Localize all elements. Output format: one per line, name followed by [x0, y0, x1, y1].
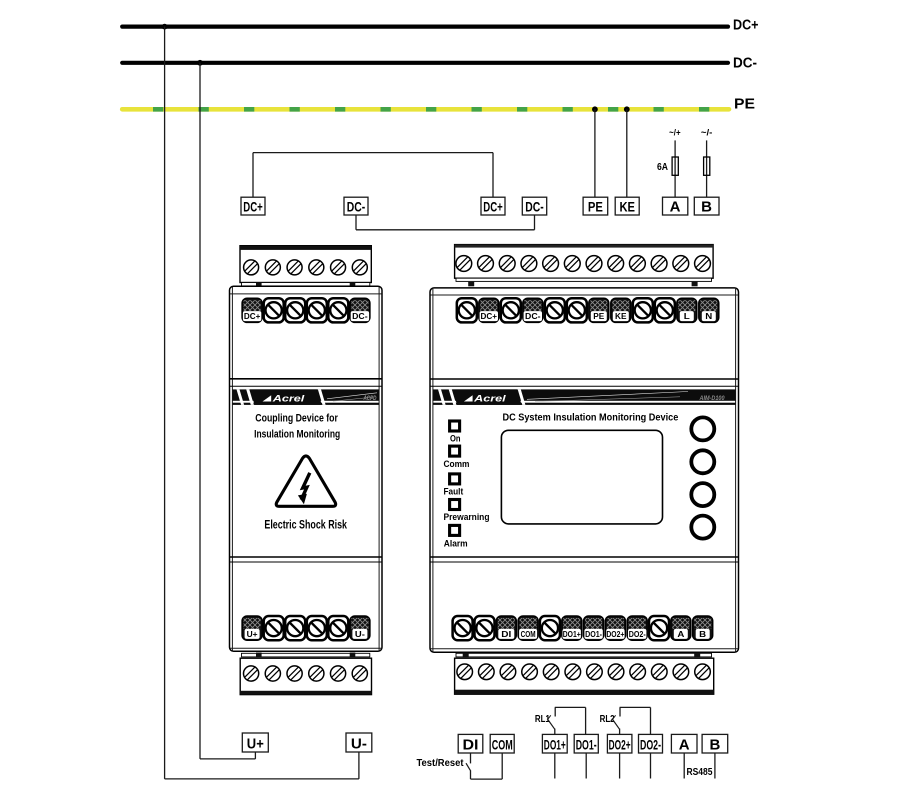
svg-text:PE: PE — [734, 97, 755, 113]
svg-text:DC+: DC+ — [481, 311, 498, 321]
svg-text:L: L — [684, 311, 690, 321]
svg-text:Electric Shock Risk: Electric Shock Risk — [264, 517, 347, 531]
svg-text:DC+: DC+ — [483, 199, 503, 215]
svg-text:KE: KE — [615, 311, 627, 321]
svg-text:A: A — [677, 629, 684, 639]
svg-text:U+: U+ — [247, 735, 264, 752]
svg-text:Acrel: Acrel — [473, 393, 506, 403]
svg-text:DC+: DC+ — [733, 18, 759, 34]
svg-text:N: N — [705, 311, 712, 321]
svg-text:A: A — [670, 198, 681, 215]
svg-text:DC-: DC- — [352, 311, 368, 321]
svg-text:U-: U- — [355, 629, 365, 639]
svg-text:RS485: RS485 — [687, 767, 713, 778]
svg-text:DC+: DC+ — [244, 311, 261, 321]
svg-text:PE: PE — [588, 199, 603, 215]
svg-text:DO1-: DO1- — [585, 629, 602, 639]
svg-text:U+: U+ — [247, 629, 258, 639]
svg-text:DC-: DC- — [525, 311, 541, 321]
svg-text:DO1-: DO1- — [576, 737, 597, 752]
svg-text:DO1+: DO1+ — [544, 737, 566, 752]
svg-text:Test/Reset: Test/Reset — [417, 758, 465, 769]
svg-text:B: B — [699, 629, 706, 639]
svg-text:DC System Insulation Monitorin: DC System Insulation Monitoring Device — [503, 412, 679, 424]
svg-text:Alarm: Alarm — [444, 538, 468, 548]
svg-text:B: B — [701, 198, 712, 215]
svg-text:PE: PE — [593, 311, 604, 321]
svg-text:DC-: DC- — [733, 55, 757, 71]
svg-text:Fault: Fault — [444, 486, 464, 496]
svg-text:Coupling Device for: Coupling Device for — [255, 413, 338, 425]
svg-text:DI: DI — [463, 736, 479, 753]
svg-text:On: On — [450, 434, 461, 444]
svg-text:AIM-D100: AIM-D100 — [699, 396, 726, 402]
svg-text:~/-: ~/- — [701, 128, 713, 139]
svg-text:DC+: DC+ — [243, 199, 263, 215]
svg-text:~/+: ~/+ — [669, 128, 681, 139]
svg-text:KE: KE — [619, 199, 635, 215]
svg-text:DO2+: DO2+ — [606, 629, 624, 639]
svg-text:DO2-: DO2- — [629, 629, 646, 639]
svg-text:B: B — [709, 736, 720, 753]
svg-text:DC-: DC- — [525, 199, 544, 215]
svg-text:Insulation Monitoring: Insulation Monitoring — [254, 429, 340, 441]
svg-text:DO2+: DO2+ — [609, 737, 631, 752]
svg-text:U-: U- — [351, 735, 367, 752]
svg-text:6A: 6A — [657, 161, 668, 173]
svg-text:COM: COM — [521, 629, 536, 639]
svg-text:Comm: Comm — [444, 459, 470, 469]
svg-text:ACPD: ACPD — [363, 396, 377, 402]
svg-text:DO1+: DO1+ — [563, 629, 581, 639]
svg-text:A: A — [679, 736, 690, 753]
svg-text:DI: DI — [501, 629, 511, 639]
svg-text:COM: COM — [492, 737, 513, 752]
svg-text:DO2-: DO2- — [640, 737, 661, 752]
svg-text:DC-: DC- — [347, 199, 366, 215]
svg-text:Acrel: Acrel — [271, 393, 304, 403]
svg-text:Prewarning: Prewarning — [444, 512, 490, 522]
